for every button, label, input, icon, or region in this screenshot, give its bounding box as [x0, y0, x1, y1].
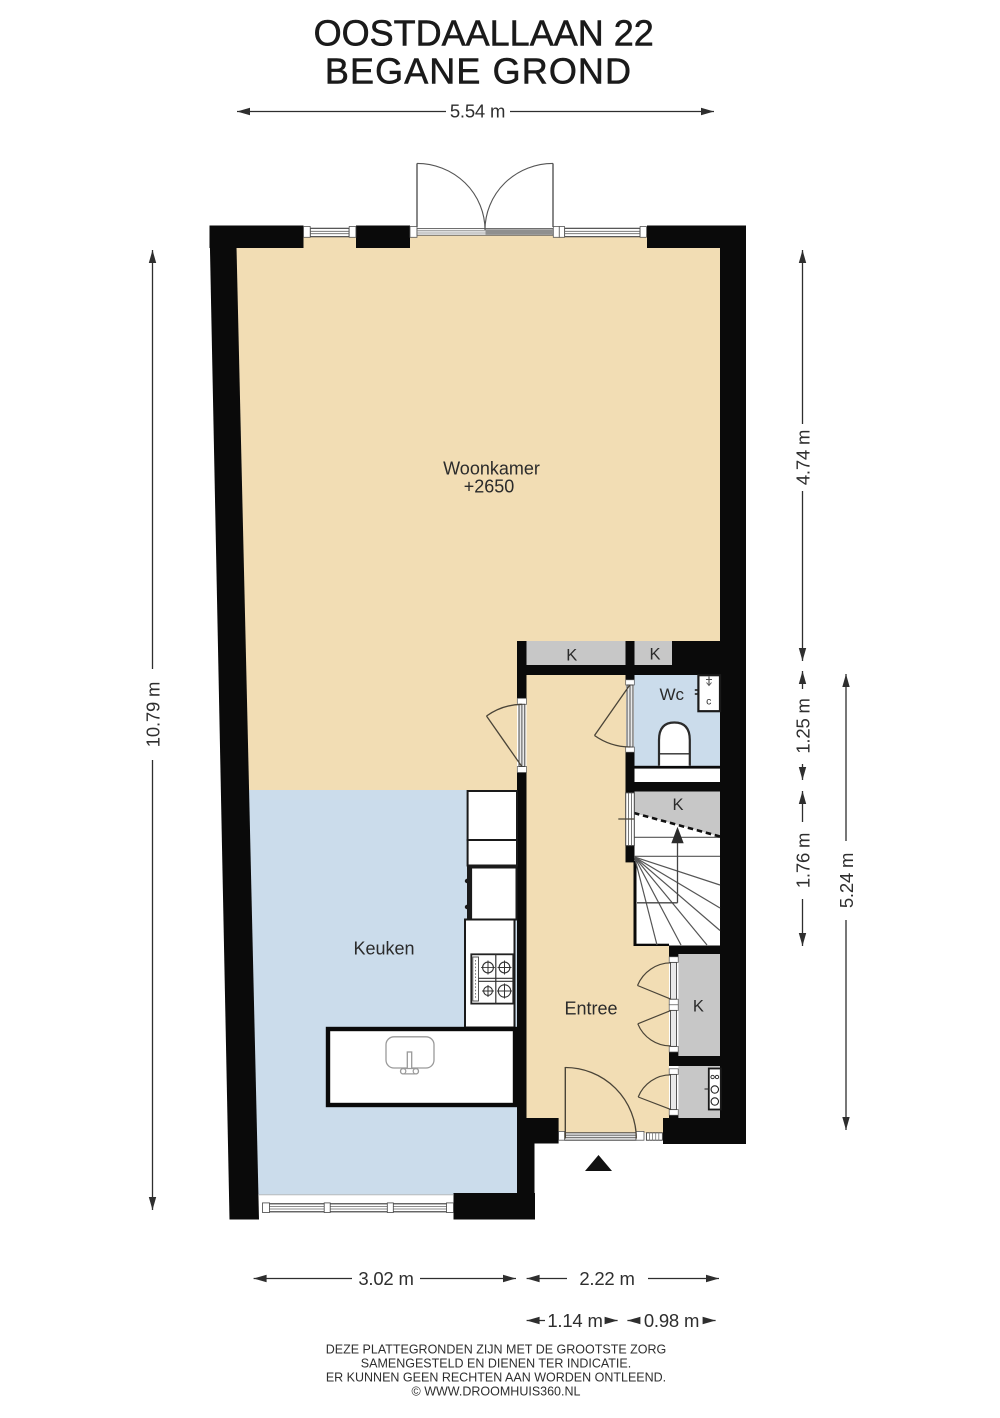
svg-text:DEZE PLATTEGRONDEN ZIJN MET DE: DEZE PLATTEGRONDEN ZIJN MET DE GROOTSTE …	[326, 1343, 667, 1357]
svg-text:1.76 m: 1.76 m	[793, 833, 814, 888]
svg-text:2.22 m: 2.22 m	[579, 1268, 634, 1289]
svg-text:0.98 m: 0.98 m	[644, 1310, 699, 1331]
svg-text:5.54 m: 5.54 m	[450, 101, 505, 122]
svg-text:Keuken: Keuken	[353, 939, 414, 959]
svg-text:1.14 m: 1.14 m	[547, 1310, 602, 1331]
svg-text:3.02 m: 3.02 m	[358, 1268, 413, 1289]
svg-text:K: K	[693, 998, 704, 1016]
svg-text:+2650: +2650	[464, 477, 515, 497]
svg-text:1.25 m: 1.25 m	[793, 698, 814, 753]
svg-text:Woonkamer: Woonkamer	[443, 459, 540, 479]
svg-text:SAMENGESTELD EN DIENEN TER IND: SAMENGESTELD EN DIENEN TER INDICATIE.	[361, 1357, 631, 1371]
svg-text:Entree: Entree	[564, 999, 617, 1019]
svg-text:5.24 m: 5.24 m	[836, 853, 857, 908]
svg-text:Wc: Wc	[660, 685, 685, 704]
svg-text:OOSTDAALLAAN 22: OOSTDAALLAAN 22	[314, 13, 654, 54]
svg-text:K: K	[566, 647, 577, 665]
svg-text:c: c	[706, 696, 711, 708]
svg-text:K: K	[672, 796, 683, 814]
svg-text:© WWW.DROOMHUIS360.NL: © WWW.DROOMHUIS360.NL	[412, 1385, 581, 1399]
svg-text:4.74 m: 4.74 m	[793, 430, 814, 485]
svg-text:BEGANE GROND: BEGANE GROND	[325, 51, 632, 92]
svg-text:ER KUNNEN GEEN RECHTEN AAN WOR: ER KUNNEN GEEN RECHTEN AAN WORDEN ONTLEE…	[326, 1371, 666, 1385]
svg-text:K: K	[649, 646, 660, 664]
svg-text:10.79 m: 10.79 m	[143, 682, 164, 747]
